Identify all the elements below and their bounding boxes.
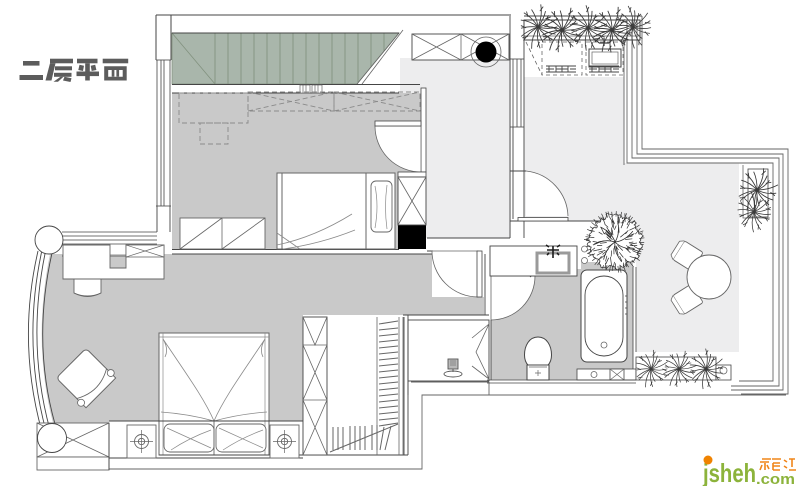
svg-text:.com: .com bbox=[756, 472, 795, 486]
